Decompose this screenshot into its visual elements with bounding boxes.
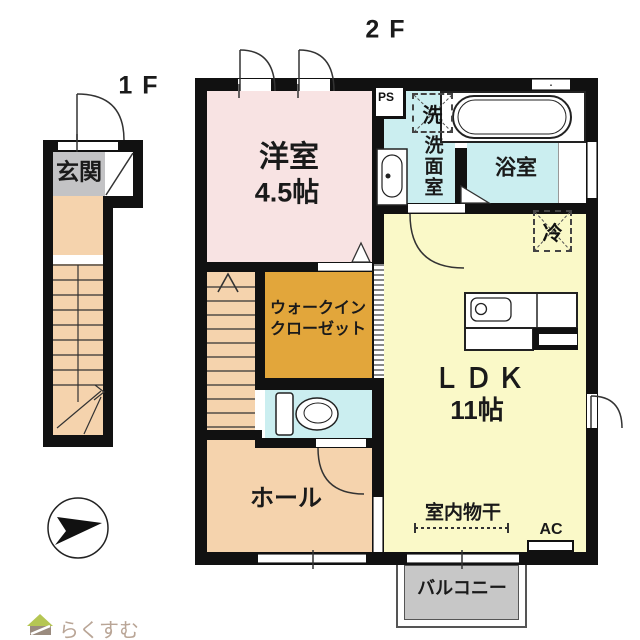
washer-space-mark: 洗 (412, 93, 453, 133)
ps-shaft: PS (373, 85, 406, 119)
wic-door-opening (318, 263, 372, 271)
yoshitsu-room (207, 91, 372, 262)
wall (43, 140, 53, 447)
yoshitsu-door-opening-1 (238, 79, 271, 91)
stairs-1f-landing-gap (53, 255, 103, 264)
bathtub-area (440, 91, 586, 143)
genkan-label: 玄関 (56, 161, 102, 184)
ldk-size-label: 11帖 (450, 397, 504, 423)
logo-text: らくすむ (59, 614, 139, 640)
toilet-room (265, 390, 372, 438)
yoshitsu-label: 洋室 (259, 143, 319, 173)
wall (195, 78, 207, 565)
hall-ldk-doorway (373, 497, 383, 552)
wall (103, 196, 113, 447)
senmen-door-opening (408, 204, 465, 213)
floor-label-2f: 2F (365, 18, 414, 43)
yoshitsu-door-opening-2 (297, 79, 330, 91)
balcony-label: バルコニー (417, 579, 507, 597)
wic-label-line2: クローゼット (270, 322, 366, 338)
bath-ledge (558, 143, 586, 203)
hall-label: ホール (250, 487, 322, 511)
bath-label: 浴室 (495, 158, 537, 179)
genkan-door-opening (58, 142, 118, 150)
logo-house-icon (27, 614, 53, 635)
ldk-label: ＬＤＫ (433, 366, 529, 393)
wall (255, 378, 372, 390)
toilet-door-opening (316, 439, 366, 447)
monohoshi-label: 室内物干 (425, 504, 501, 523)
ac-unit-box (527, 540, 574, 552)
bath-top-window (532, 79, 570, 90)
senmen-label: 洗面室 (423, 135, 442, 198)
ps-label: PS (378, 90, 394, 104)
compass-icon (48, 498, 108, 558)
entry-door-opening (587, 394, 597, 428)
washer-mark-label: 洗 (423, 99, 443, 128)
wic-label-line1: ウォークイン (270, 301, 366, 317)
floor-plan: PS (0, 0, 640, 640)
fridge-mark-label: 冷 (543, 217, 563, 246)
hall-window (258, 554, 366, 563)
floor-label-1f: 1F (118, 74, 167, 99)
bath-side-window (587, 142, 597, 198)
under-stair-box (105, 152, 133, 196)
stairs-1f-room (53, 196, 103, 435)
balcony-window (407, 554, 519, 563)
yoshitsu-size-label: 4.5帖 (255, 180, 320, 207)
wall (195, 552, 598, 565)
ac-label: AC (539, 522, 562, 538)
wall (43, 435, 113, 447)
wall (455, 148, 467, 204)
stairs-2f-room (207, 272, 255, 438)
wall (255, 262, 265, 390)
fridge-space-mark: 冷 (533, 210, 572, 252)
wall (207, 430, 262, 440)
wic-front-panel (374, 264, 384, 378)
